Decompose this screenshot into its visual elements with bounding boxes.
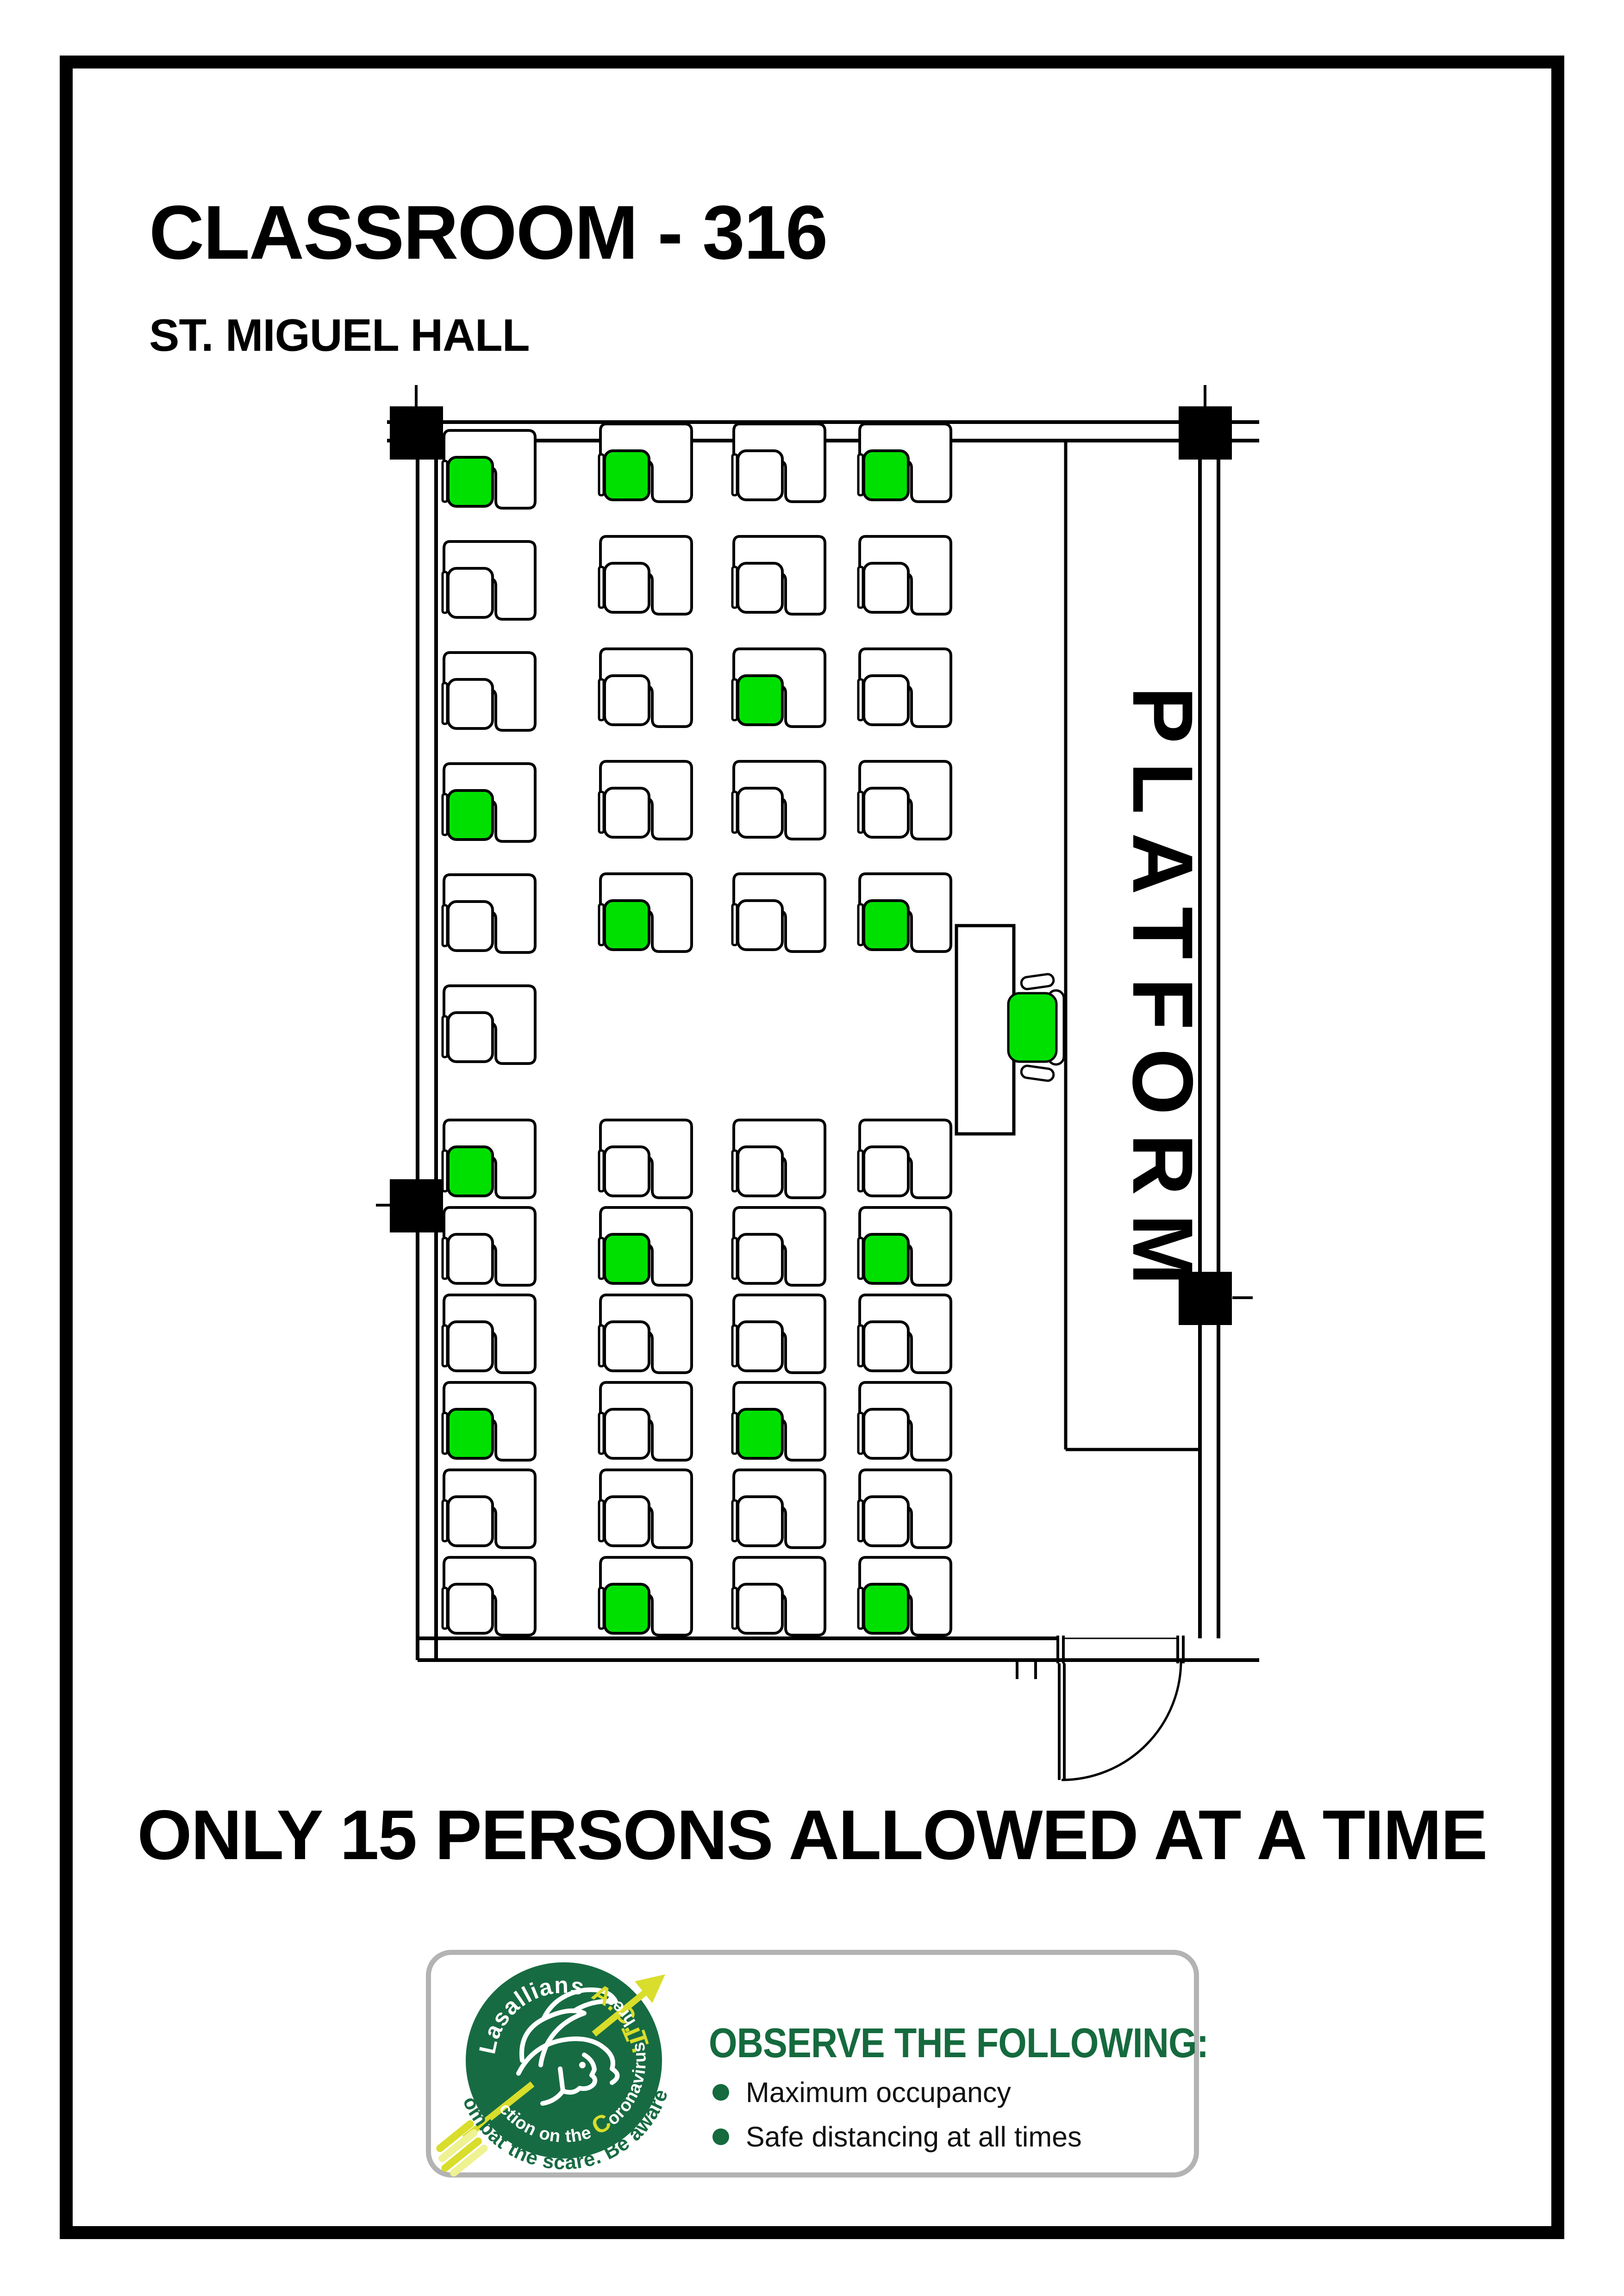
student-desk-unit — [599, 424, 692, 502]
chair-back — [443, 1016, 447, 1057]
column-top-left — [390, 406, 443, 460]
chair-back — [732, 1500, 737, 1541]
student-desk-unit — [732, 874, 825, 952]
chair-back — [732, 454, 737, 495]
teacher-chair — [1008, 973, 1064, 1081]
chair-back — [858, 1588, 863, 1629]
chair-back — [732, 1588, 737, 1629]
chair-back — [443, 1325, 447, 1366]
teacher-available-seat — [1008, 993, 1056, 1062]
observe-bullets: Maximum occupancy Safe distancing at all… — [712, 2076, 1082, 2165]
available-seat — [605, 451, 649, 500]
student-desk-unit — [599, 649, 692, 727]
chair-back — [732, 1325, 737, 1366]
student-desk-unit — [732, 536, 825, 614]
seat — [448, 568, 493, 617]
available-seat — [448, 790, 493, 840]
chair-back — [858, 1325, 863, 1366]
student-desk-unit — [443, 764, 535, 841]
student-desk-unit — [858, 874, 951, 952]
chair-back — [443, 1413, 447, 1454]
seat — [864, 1322, 908, 1371]
student-desk-unit — [858, 1295, 951, 1373]
chair-back — [443, 1500, 447, 1541]
student-desk-unit — [599, 761, 692, 839]
chair-back — [858, 567, 863, 608]
student-desk-unit — [599, 1557, 692, 1635]
platform-label: PLATFORM — [1115, 686, 1210, 1304]
student-desk-unit — [599, 1120, 692, 1198]
seat — [738, 1584, 782, 1633]
available-seat — [448, 1409, 493, 1458]
chair-back — [443, 572, 447, 613]
student-desk-unit — [858, 1470, 951, 1548]
column-top-right — [1179, 406, 1232, 460]
seat — [864, 1497, 908, 1546]
bullet-item: Maximum occupancy — [712, 2076, 1082, 2109]
seat — [864, 1409, 908, 1458]
seat — [605, 1497, 649, 1546]
available-seat — [864, 1234, 908, 1283]
available-seat — [738, 1409, 782, 1458]
chair-back — [443, 905, 447, 946]
student-desk-unit — [443, 1470, 535, 1548]
chair-back — [443, 683, 447, 724]
seat — [738, 563, 782, 612]
seat — [738, 1497, 782, 1546]
floor-plan: PLATFORM — [361, 366, 1282, 1823]
seat — [448, 1013, 493, 1062]
chair-back — [443, 794, 447, 835]
column-mid-left — [390, 1179, 443, 1232]
chair-back — [732, 1238, 737, 1279]
student-desk-unit — [732, 649, 825, 727]
seat — [738, 788, 782, 837]
chair-back — [858, 904, 863, 945]
chair-back — [599, 1413, 604, 1454]
chair-back — [599, 1151, 604, 1191]
student-desk-unit — [443, 653, 535, 730]
student-desk-unit — [599, 1382, 692, 1460]
teacher-chair-armrest — [1021, 973, 1055, 989]
available-seat — [448, 457, 493, 506]
chair-back — [858, 1151, 863, 1191]
chair-back — [858, 1238, 863, 1279]
student-desk-unit — [443, 875, 535, 952]
student-desk-unit — [443, 1557, 535, 1635]
student-desk-unit — [858, 1207, 951, 1285]
seat — [448, 1234, 493, 1283]
student-desk-unit — [443, 1382, 535, 1460]
student-desk-unit — [732, 1120, 825, 1198]
chair-back — [732, 567, 737, 608]
student-desk-unit — [732, 761, 825, 839]
student-desk-unit — [858, 1382, 951, 1460]
seat — [864, 676, 908, 725]
page-title: CLASSROOM - 316 — [149, 189, 827, 276]
seat — [864, 563, 908, 612]
seat — [605, 1147, 649, 1196]
chair-back — [858, 679, 863, 720]
student-desk-unit — [858, 649, 951, 727]
chair-back — [732, 679, 737, 720]
seat — [738, 1322, 782, 1371]
available-seat — [448, 1147, 493, 1196]
seat — [448, 1497, 493, 1546]
seat — [448, 1322, 493, 1371]
available-seat — [864, 1584, 908, 1633]
bullet-item: Safe distancing at all times — [712, 2121, 1082, 2153]
available-seat — [605, 1584, 649, 1633]
chair-back — [732, 792, 737, 833]
door-swing-arc — [1062, 1661, 1181, 1780]
seat — [738, 1234, 782, 1283]
chair-back — [443, 1238, 447, 1279]
student-desk-unit — [599, 536, 692, 614]
student-desk-unit — [732, 1557, 825, 1635]
student-desks — [443, 424, 951, 1635]
student-desk-unit — [599, 1295, 692, 1373]
chair-back — [599, 1588, 604, 1629]
available-seat — [864, 901, 908, 950]
bullet-text: Safe distancing at all times — [746, 2121, 1082, 2153]
seat — [738, 1147, 782, 1196]
seat — [605, 676, 649, 725]
page-subtitle: ST. MIGUEL HALL — [149, 309, 530, 361]
student-desk-unit — [443, 986, 535, 1064]
student-desk-unit — [732, 424, 825, 502]
available-seat — [605, 901, 649, 950]
student-desk-unit — [443, 541, 535, 619]
chair-back — [599, 1500, 604, 1541]
chair-back — [732, 904, 737, 945]
student-desk-unit — [443, 430, 535, 508]
bullet-dot-icon — [712, 2084, 729, 2101]
seat — [738, 451, 782, 500]
seat — [448, 679, 493, 728]
capacity-notice: ONLY 15 PERSONS ALLOWED AT A TIME — [0, 1795, 1624, 1876]
seat — [605, 1322, 649, 1371]
student-desk-unit — [858, 536, 951, 614]
chair-back — [732, 1151, 737, 1191]
chair-back — [732, 1413, 737, 1454]
chair-back — [858, 454, 863, 495]
student-desk-unit — [732, 1470, 825, 1548]
chair-back — [443, 1588, 447, 1629]
available-seat — [864, 451, 908, 500]
chair-back — [858, 1413, 863, 1454]
seat — [605, 563, 649, 612]
bullet-dot-icon — [712, 2128, 729, 2145]
student-desk-unit — [599, 874, 692, 952]
seat — [738, 901, 782, 950]
chair-back — [599, 1325, 604, 1366]
door — [1058, 1636, 1183, 1780]
seat — [864, 788, 908, 837]
student-desk-unit — [858, 1557, 951, 1635]
student-desk-unit — [599, 1207, 692, 1285]
available-seat — [605, 1234, 649, 1283]
student-desk-unit — [443, 1295, 535, 1373]
observe-heading: OBSERVE THE FOLLOWING: — [709, 2020, 1208, 2067]
seat — [448, 1584, 493, 1633]
chair-back — [443, 461, 447, 502]
student-desk-unit — [732, 1207, 825, 1285]
chair-back — [858, 1500, 863, 1541]
chair-back — [443, 1151, 447, 1191]
info-card: Lasallians A.C.T. Action on the Coronavi… — [426, 1950, 1199, 2178]
chair-back — [599, 679, 604, 720]
available-seat — [738, 676, 782, 725]
student-desk-unit — [599, 1470, 692, 1548]
chair-back — [858, 792, 863, 833]
student-desk-unit — [732, 1382, 825, 1460]
student-desk-unit — [443, 1120, 535, 1198]
seat — [605, 788, 649, 837]
student-desk-unit — [858, 1120, 951, 1198]
seat — [864, 1147, 908, 1196]
teacher-desk — [956, 926, 1014, 1134]
student-desk-unit — [858, 761, 951, 839]
student-desk-unit — [858, 424, 951, 502]
chair-back — [599, 1238, 604, 1279]
bullet-text: Maximum occupancy — [746, 2076, 1011, 2109]
poster-page: { "page": { "title": "CLASSROOM - 316", … — [0, 0, 1624, 2296]
teacher-chair-armrest — [1021, 1065, 1055, 1081]
chair-back — [599, 904, 604, 945]
seat — [605, 1409, 649, 1458]
chair-back — [599, 567, 604, 608]
chair-back — [599, 792, 604, 833]
student-desk-unit — [443, 1207, 535, 1285]
student-desk-unit — [732, 1295, 825, 1373]
chair-back — [599, 454, 604, 495]
seat — [448, 902, 493, 951]
